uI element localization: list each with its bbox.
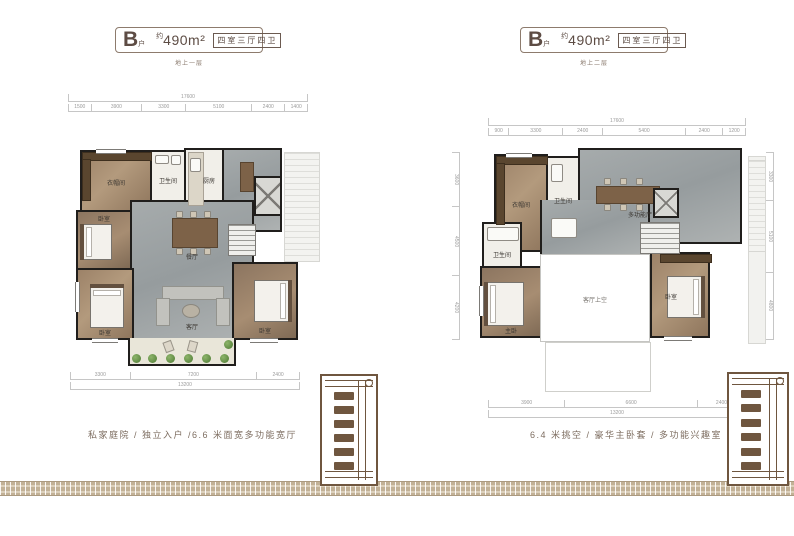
dim-top-total-right: 17600 [488,118,746,126]
dim-value: 3900 [488,400,564,408]
window [92,338,118,343]
exterior-stair-right-plan [748,160,766,252]
dim-value: 3300 [508,128,562,136]
sofa-side [156,298,170,326]
keymap-road [769,378,777,480]
keymap-buildings [741,390,761,470]
bed [484,282,524,326]
window [96,149,126,154]
dim-value: 900 [488,128,508,136]
area-prefix: 约 [561,31,568,41]
room-label: 卫生间 [484,250,520,259]
site-keymap-left [320,374,378,486]
wardrobe [660,254,712,263]
area-value: 490m² [568,32,610,48]
dim-value: 6600 [564,400,697,408]
room-label: 卧室 [78,214,130,223]
room-label: 主卧 [482,326,540,335]
bathtub [487,227,519,241]
stove [190,158,201,172]
dim-value: 5100 [185,104,251,112]
toilet [551,164,563,182]
interior-stairs [228,224,256,256]
toilet [171,155,181,165]
terrace-outline [545,342,651,392]
dim-value: 2400 [256,372,300,380]
dim-bottom-total-right: 13200 [488,410,746,418]
void-label: 客厅上空 [541,295,649,304]
dim-value: 17600 [68,94,308,102]
garden-chair [187,340,199,353]
keymap-buildings [334,392,354,470]
dim-bottom-segments-left: 3300 7200 2400 [70,372,300,380]
window [664,336,692,341]
layout-summary: 四室三厅四卫 [618,33,686,48]
site-keymap-right [727,372,789,486]
dim-value: 3300 [767,171,773,182]
unit-badge-right: B 户 约 490m² 四室三厅四卫 [520,27,668,53]
bed [90,284,124,328]
elevator-shaft [653,188,679,218]
sink [155,155,169,164]
keymap-road [358,380,366,480]
feature-caption-right: 6.4 米挑空 / 豪华主卧套 / 多功能兴趣室 [530,428,722,441]
unit-type-letter: B [123,30,138,50]
dim-top-segments-right: 900 3300 2400 5400 2400 1200 [488,128,746,136]
wardrobe [496,163,505,225]
dim-value: 1400 [284,104,308,112]
long-table [596,186,660,204]
bed [667,276,705,318]
garden-chair [162,340,174,353]
dim-value: 17600 [488,118,746,126]
window [506,153,532,158]
room-label: 卫生间 [152,176,184,185]
area-prefix: 约 [156,31,163,41]
window [250,338,278,343]
dim-value: 5400 [602,128,685,136]
dim-value: 4800 [767,300,773,311]
feature-caption-left: 私家庭院 / 独立入户 /6.6 米面宽多功能宽厅 [88,428,297,441]
dim-top-total-left: 17600 [68,94,308,102]
room-bedroom-mid: 卧室 [76,210,132,270]
room-label: 衣帽间 [82,178,150,187]
dim-value: 3300 [141,104,185,112]
room-bath-1: 卫生间 [150,150,186,204]
layout-summary: 四室三厅四卫 [213,33,281,48]
room-garden [128,338,236,366]
floor-caption-left: 地上一层 [144,58,234,67]
dim-top-segments-left: 1500 3900 3300 5100 2400 1400 [68,104,308,112]
floor-caption-right: 地上二层 [549,58,639,67]
dim-value: 5100 [767,231,773,242]
dim-value: 2400 [562,128,602,136]
floorplan-page: B 户 约 490m² 四室三厅四卫 地上一层 17600 1500 3900 … [0,0,794,536]
room-bedroom-br: 卧室 [232,262,298,340]
dining-table [172,218,218,248]
dim-value: 2400 [685,128,722,136]
room-bedroom-bl: 卧室 [76,268,134,340]
elevator-shaft [254,176,282,216]
dim-value: 4500 [453,236,459,247]
dim-bottom-segments-right: 3900 6600 2400 [488,400,746,408]
interior-stairs [640,222,680,254]
unit-type-suffix: 户 [138,39,145,49]
exterior-stair-left-plan [284,152,320,262]
dim-left-segments-right-plan: 3600 4500 4200 [452,152,460,340]
ornamental-border-band [0,481,794,496]
dim-value: 13200 [488,410,746,418]
dim-value: 3300 [70,372,130,380]
room-label: 卧室 [78,328,132,337]
dim-value: 7200 [130,372,257,380]
sofa-side [216,298,230,326]
wardrobe [82,159,91,201]
dim-value: 1500 [68,104,91,112]
window [75,282,80,312]
room-bath-2f-b: 卫生间 [482,222,522,268]
dim-bottom-total-left: 13200 [70,382,300,390]
room-master-bedroom: 主卧 [480,266,542,338]
coffee-table [182,304,200,318]
dim-value: 1200 [722,128,746,136]
sofa [162,286,224,300]
bed [254,280,292,322]
dim-right-segments-right-plan: 3300 5100 4800 [766,152,774,340]
unit-type-letter: B [528,30,543,50]
dim-value: 3900 [91,104,142,112]
room-label: 卧室 [234,326,296,335]
window [479,286,484,316]
keymap-roundabout [365,379,373,387]
bed [80,224,112,260]
unit-badge-left: B 户 约 490m² 四室三厅四卫 [115,27,263,53]
console-table [240,162,254,192]
void-over-living: 客厅上空 [540,254,650,342]
dim-value: 4200 [453,302,459,313]
dim-value: 3600 [453,174,459,185]
area-value: 490m² [163,32,205,48]
dim-value: 13200 [70,382,300,390]
bathtub [551,218,577,238]
keymap-roundabout [776,377,784,385]
unit-type-suffix: 户 [543,39,550,49]
room-bedroom-2f: 卧室 [650,252,710,338]
dim-value: 2400 [251,104,284,112]
